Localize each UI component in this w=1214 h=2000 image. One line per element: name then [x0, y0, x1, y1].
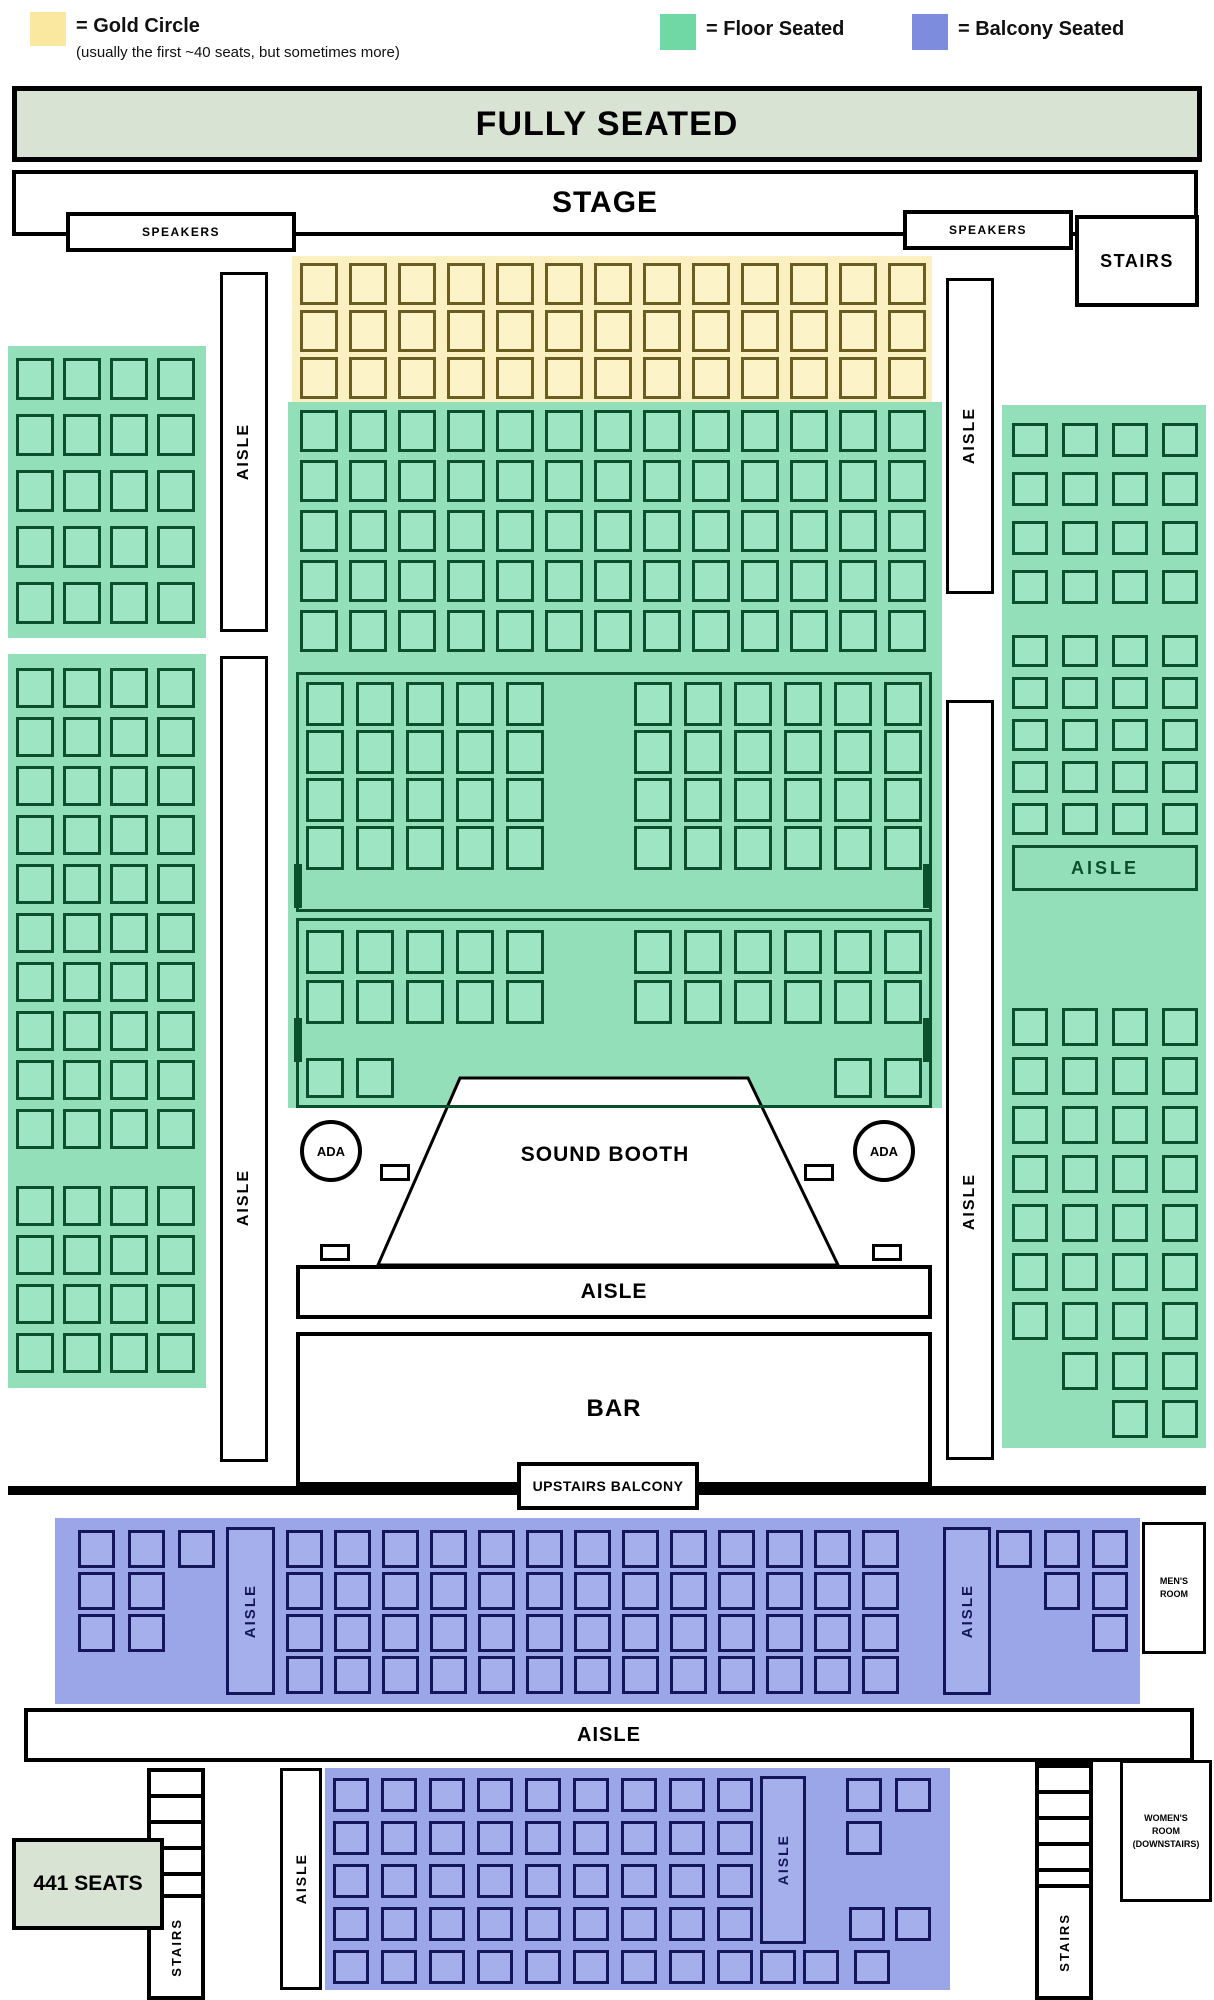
seat-floor-right-mid: [1012, 635, 1048, 667]
seat-balcony-lower-left: [669, 1864, 705, 1898]
seat-balcony-lower-right: [760, 1950, 796, 1984]
seat-balcony-upper-right: [1044, 1530, 1080, 1568]
ada-circle-left: ADA: [300, 1120, 362, 1182]
legend-gold-label: = Gold Circle: [76, 15, 200, 38]
seat-floor-right-upper: [1062, 472, 1098, 506]
seat-balcony-upper-mid: [478, 1572, 515, 1610]
seat-floor-right-rear-c: [1112, 1400, 1148, 1438]
seat-floor-left-upper: [16, 414, 54, 456]
seat-center-box2-edge-left: [306, 1058, 344, 1098]
seat-balcony-lower-left: [381, 1907, 417, 1941]
seat-center-box1-right: [684, 682, 722, 726]
stairs-label: STAIRS: [1057, 1913, 1072, 1972]
seat-floor-right-rear: [1112, 1057, 1148, 1095]
seat-floor-right-mid: [1112, 719, 1148, 751]
seat-gold-circle: [741, 357, 779, 399]
seat-center-box1-right: [784, 826, 822, 870]
seat-balcony-lower-left: [669, 1778, 705, 1812]
seat-floor-left-upper: [16, 470, 54, 512]
seat-floor-left-main: [16, 1011, 54, 1051]
seat-floor-right-rear: [1062, 1057, 1098, 1095]
seat-balcony-upper-mid: [574, 1614, 611, 1652]
aisle-label: AISLE: [1071, 858, 1139, 879]
womens-room-label-1: WOMEN'S: [1133, 1812, 1200, 1825]
seat-floor-front: [349, 510, 387, 552]
seat-floor-left-rear: [63, 1235, 101, 1275]
seat-floor-right-mid: [1112, 803, 1148, 835]
seat-floor-right-mid: [1062, 677, 1098, 709]
seat-floor-left-main: [157, 1109, 195, 1149]
seat-center-box1-left: [456, 826, 494, 870]
seat-floor-front: [643, 510, 681, 552]
seat-floor-left-upper: [110, 358, 148, 400]
seat-center-box1-left: [356, 682, 394, 726]
seat-floor-right-upper: [1012, 423, 1048, 457]
seat-floor-front: [790, 510, 828, 552]
seat-center-box2-right: [634, 930, 672, 974]
seat-center-box1-left: [506, 682, 544, 726]
sound-booth-label: SOUND BOOTH: [460, 1135, 750, 1175]
seat-floor-right-upper: [1012, 472, 1048, 506]
seat-floor-left-upper: [157, 582, 195, 624]
seat-center-box1-right: [784, 682, 822, 726]
seat-balcony-lower-left: [621, 1864, 657, 1898]
seat-center-box1-left: [306, 682, 344, 726]
seat-floor-front: [741, 460, 779, 502]
seat-balcony-lower-left: [429, 1907, 465, 1941]
seat-gold-circle: [594, 357, 632, 399]
seat-floor-front: [741, 510, 779, 552]
seat-balcony-upper-mid: [334, 1572, 371, 1610]
aisle-right-main: AISLE: [946, 700, 994, 1460]
seat-floor-front: [447, 560, 485, 602]
seat-floor-right-mid: [1162, 761, 1198, 793]
seat-balcony-lower-left: [717, 1821, 753, 1855]
seat-floor-right-mid: [1162, 677, 1198, 709]
seat-balcony-upper-mid: [670, 1530, 707, 1568]
seat-floor-right-upper: [1112, 521, 1148, 555]
seat-balcony-lower-left: [573, 1950, 609, 1984]
seat-floor-right-upper: [1012, 570, 1048, 604]
seat-balcony-upper-right: [996, 1530, 1032, 1568]
seat-balcony-lower-left: [669, 1907, 705, 1941]
seat-center-box1-right: [734, 778, 772, 822]
seat-balcony-upper-mid: [862, 1656, 899, 1694]
seat-balcony-upper-right: [1092, 1614, 1128, 1652]
seat-floor-left-main: [16, 913, 54, 953]
seat-balcony-upper-mid: [286, 1530, 323, 1568]
legend: = Gold Circle (usually the first ~40 sea…: [0, 0, 1214, 80]
speaker-right-box: SPEAKERS: [903, 210, 1073, 250]
seat-center-box2-right: [834, 930, 872, 974]
seat-floor-right-upper: [1112, 570, 1148, 604]
seat-balcony-upper-mid: [334, 1656, 371, 1694]
seat-center-box2-left: [506, 930, 544, 974]
seat-gold-circle: [447, 263, 485, 305]
seat-floor-right-rear-b: [1112, 1352, 1148, 1390]
seat-center-box1-left: [506, 778, 544, 822]
seat-gold-circle: [643, 357, 681, 399]
seat-floor-left-rear: [157, 1186, 195, 1226]
seat-center-box2-right: [684, 980, 722, 1024]
seat-floor-front: [839, 410, 877, 452]
mens-room-label-2: ROOM: [1160, 1588, 1188, 1601]
aisle-label: AISLE: [293, 1853, 309, 1904]
seat-gold-circle: [349, 310, 387, 352]
seat-floor-front: [888, 410, 926, 452]
seat-balcony-upper-mid: [334, 1614, 371, 1652]
seat-floor-right-upper: [1162, 521, 1198, 555]
seat-balcony-upper-mid: [430, 1614, 467, 1652]
seat-floor-right-mid: [1112, 635, 1148, 667]
seat-balcony-upper-mid: [670, 1614, 707, 1652]
seat-gold-circle: [545, 310, 583, 352]
seat-center-box1-right: [734, 826, 772, 870]
seat-gold-circle: [839, 310, 877, 352]
seat-gold-circle: [643, 263, 681, 305]
seat-floor-front: [888, 610, 926, 652]
seat-center-box2-right: [684, 930, 722, 974]
seat-floor-right-rear: [1162, 1253, 1198, 1291]
seat-floor-front: [790, 610, 828, 652]
seat-floor-left-main: [110, 1011, 148, 1051]
seat-floor-left-rear: [63, 1186, 101, 1226]
seat-balcony-upper-mid: [382, 1614, 419, 1652]
seat-floor-right-rear: [1162, 1155, 1198, 1193]
seat-floor-front: [741, 610, 779, 652]
seat-floor-left-main: [63, 1011, 101, 1051]
seat-floor-front: [790, 460, 828, 502]
seat-balcony-lower-left: [381, 1864, 417, 1898]
seat-balcony-upper-left: [128, 1530, 165, 1568]
seat-floor-front: [545, 510, 583, 552]
seat-balcony-lower-right: [849, 1907, 885, 1941]
seat-gold-circle: [496, 263, 534, 305]
seat-balcony-lower-left: [525, 1950, 561, 1984]
seat-center-box2-left: [506, 980, 544, 1024]
seat-floor-left-rear: [16, 1333, 54, 1373]
seat-center-box1-right: [884, 778, 922, 822]
seat-balcony-lower-left: [381, 1778, 417, 1812]
seat-floor-left-main: [63, 668, 101, 708]
seat-gold-circle: [398, 310, 436, 352]
seat-floor-left-main: [16, 962, 54, 1002]
seat-floor-front: [496, 560, 534, 602]
stage-stairs-label: STAIRS: [1100, 251, 1174, 272]
seat-floor-right-rear: [1012, 1155, 1048, 1193]
seat-floor-right-upper: [1012, 521, 1048, 555]
seat-floor-left-main: [110, 766, 148, 806]
seat-balcony-upper-mid: [286, 1614, 323, 1652]
seat-balcony-lower-left: [573, 1907, 609, 1941]
seat-floor-front: [692, 460, 730, 502]
seat-gold-circle: [349, 263, 387, 305]
aisle-label: AISLE: [581, 1280, 648, 1304]
seat-gold-circle: [349, 357, 387, 399]
seat-floor-right-rear: [1062, 1253, 1098, 1291]
seat-floor-left-main: [157, 962, 195, 1002]
seat-floor-right-rear: [1112, 1253, 1148, 1291]
seat-center-box1-left: [456, 682, 494, 726]
seat-gold-circle: [594, 310, 632, 352]
seat-floor-right-rear: [1112, 1204, 1148, 1242]
seat-floor-right-mid: [1162, 719, 1198, 751]
aisle-label: AISLE: [961, 1173, 979, 1230]
seat-balcony-lower-right: [854, 1950, 890, 1984]
seat-balcony-lower-left: [477, 1821, 513, 1855]
seat-center-box1-right: [734, 682, 772, 726]
seat-floor-left-rear: [63, 1333, 101, 1373]
seat-gold-circle: [790, 357, 828, 399]
seat-gold-circle: [741, 310, 779, 352]
legend-balcony-label: = Balcony Seated: [958, 18, 1124, 41]
seat-balcony-upper-mid: [382, 1530, 419, 1568]
seat-floor-front: [447, 510, 485, 552]
seat-balcony-upper-left: [178, 1530, 215, 1568]
lower-left-aisle: AISLE: [280, 1768, 322, 1990]
seat-floor-front: [496, 410, 534, 452]
seat-balcony-upper-mid: [814, 1656, 851, 1694]
seat-floor-right-upper: [1162, 570, 1198, 604]
seat-balcony-upper-mid: [478, 1656, 515, 1694]
seat-gold-circle: [839, 263, 877, 305]
seat-floor-front: [643, 610, 681, 652]
seat-floor-right-upper: [1112, 423, 1148, 457]
seat-floor-left-main: [63, 717, 101, 757]
seat-floor-right-rear: [1062, 1302, 1098, 1340]
upstairs-balcony-label: UPSTAIRS BALCONY: [517, 1462, 699, 1510]
ada-marker: [872, 1244, 902, 1261]
seat-gold-circle: [545, 357, 583, 399]
seat-floor-front: [692, 610, 730, 652]
seat-floor-left-main: [110, 815, 148, 855]
seat-floor-right-rear: [1062, 1008, 1098, 1046]
seat-center-box1-right: [884, 682, 922, 726]
seat-balcony-upper-mid: [766, 1530, 803, 1568]
seat-gold-circle: [643, 310, 681, 352]
seat-floor-left-main: [157, 913, 195, 953]
seat-floor-left-main: [16, 766, 54, 806]
seat-balcony-upper-mid: [286, 1656, 323, 1694]
seat-floor-front: [643, 560, 681, 602]
seat-center-box2-right: [634, 980, 672, 1024]
seat-center-box1-right: [634, 826, 672, 870]
seat-floor-left-upper: [157, 414, 195, 456]
seat-floor-left-upper: [63, 582, 101, 624]
seat-floor-front: [594, 460, 632, 502]
seat-floor-front: [398, 560, 436, 602]
seat-gold-circle: [496, 357, 534, 399]
seat-center-box2-right: [884, 980, 922, 1024]
seat-floor-left-main: [157, 1060, 195, 1100]
seat-floor-left-rear: [63, 1284, 101, 1324]
seat-balcony-lower-left: [333, 1907, 369, 1941]
seat-floor-left-rear: [157, 1235, 195, 1275]
seat-balcony-lower-left: [669, 1821, 705, 1855]
seat-floor-front: [545, 560, 583, 602]
seat-gold-circle: [888, 310, 926, 352]
seat-balcony-lower-left: [573, 1864, 609, 1898]
seat-balcony-lower-right: [895, 1778, 931, 1812]
seat-balcony-lower-right: [846, 1821, 882, 1855]
seat-balcony-upper-right: [1092, 1572, 1128, 1610]
seat-balcony-upper-mid: [670, 1656, 707, 1694]
seat-gold-circle: [594, 263, 632, 305]
seat-balcony-upper-left: [78, 1614, 115, 1652]
seat-balcony-upper-mid: [430, 1656, 467, 1694]
ada-label: ADA: [870, 1144, 898, 1159]
seat-floor-right-rear-b: [1062, 1352, 1098, 1390]
seat-center-box2-left: [306, 930, 344, 974]
seat-floor-left-main: [157, 766, 195, 806]
seat-balcony-lower-left: [621, 1950, 657, 1984]
seat-center-box1-right: [734, 730, 772, 774]
seat-floor-right-rear: [1012, 1008, 1048, 1046]
seat-floor-right-rear: [1112, 1008, 1148, 1046]
seat-center-box1-left: [356, 778, 394, 822]
seat-balcony-lower-left: [381, 1950, 417, 1984]
seat-floor-left-upper: [16, 582, 54, 624]
seat-floor-front: [447, 460, 485, 502]
seat-balcony-lower-left: [477, 1950, 513, 1984]
seat-floor-front: [349, 460, 387, 502]
aisle-label: AISLE: [242, 1584, 259, 1638]
seat-balcony-lower-left: [477, 1778, 513, 1812]
seat-floor-right-mid: [1012, 677, 1048, 709]
seat-floor-front: [398, 410, 436, 452]
seat-floor-left-upper: [63, 526, 101, 568]
seat-balcony-lower-left: [717, 1907, 753, 1941]
seat-floor-left-main: [63, 962, 101, 1002]
seat-balcony-upper-mid: [766, 1614, 803, 1652]
seat-floor-front: [839, 560, 877, 602]
seat-floor-right-rear: [1062, 1106, 1098, 1144]
seat-floor-right-rear: [1012, 1204, 1048, 1242]
seat-balcony-lower-right: [846, 1778, 882, 1812]
door-marker: [923, 1018, 931, 1062]
aisle-label: AISLE: [959, 1584, 976, 1638]
seat-gold-circle: [447, 357, 485, 399]
seat-balcony-upper-mid: [718, 1656, 755, 1694]
seating-chart: = Gold Circle (usually the first ~40 sea…: [0, 0, 1214, 2000]
seat-floor-left-rear: [16, 1235, 54, 1275]
seat-floor-front: [496, 510, 534, 552]
seat-floor-right-upper: [1062, 570, 1098, 604]
seat-balcony-upper-mid: [526, 1572, 563, 1610]
seat-center-box1-left: [306, 826, 344, 870]
seat-balcony-lower-left: [333, 1864, 369, 1898]
aisle-center-cross: AISLE: [296, 1265, 932, 1319]
seat-balcony-lower-left: [573, 1821, 609, 1855]
seat-center-box2-right: [734, 930, 772, 974]
seat-balcony-upper-mid: [526, 1614, 563, 1652]
seat-floor-front: [496, 460, 534, 502]
seat-center-box2-right: [784, 980, 822, 1024]
seat-center-box1-right: [684, 826, 722, 870]
seat-balcony-lower-left: [477, 1864, 513, 1898]
seat-gold-circle: [692, 263, 730, 305]
seat-floor-right-rear-c: [1162, 1400, 1198, 1438]
seat-floor-front: [300, 460, 338, 502]
seat-floor-front: [300, 510, 338, 552]
seat-floor-left-rear: [110, 1333, 148, 1373]
seat-center-box1-right: [634, 682, 672, 726]
seat-gold-circle: [692, 357, 730, 399]
seat-floor-left-rear: [16, 1186, 54, 1226]
seat-balcony-upper-mid: [718, 1614, 755, 1652]
seat-balcony-upper-left: [128, 1614, 165, 1652]
floor-right-area: [1002, 405, 1206, 1448]
seat-floor-right-rear: [1162, 1302, 1198, 1340]
seat-floor-right-rear: [1062, 1155, 1098, 1193]
seat-floor-front: [594, 510, 632, 552]
seat-floor-right-rear: [1012, 1302, 1048, 1340]
seat-balcony-upper-mid: [334, 1530, 371, 1568]
seat-center-box2-left: [406, 980, 444, 1024]
seat-floor-front: [741, 560, 779, 602]
seat-floor-front: [300, 410, 338, 452]
seat-floor-front: [790, 560, 828, 602]
door-marker: [294, 1018, 302, 1062]
seat-floor-left-rear: [110, 1284, 148, 1324]
seat-center-box1-right: [784, 778, 822, 822]
seat-floor-right-mid: [1062, 719, 1098, 751]
seat-gold-circle: [888, 357, 926, 399]
seat-floor-front: [545, 610, 583, 652]
seat-floor-left-upper: [16, 526, 54, 568]
seat-gold-circle: [790, 263, 828, 305]
seat-floor-front: [839, 510, 877, 552]
aisle-label: AISLE: [961, 407, 979, 464]
seat-floor-right-mid: [1012, 761, 1048, 793]
seat-center-box2-right: [834, 980, 872, 1024]
seat-balcony-lower-left: [621, 1907, 657, 1941]
seat-floor-left-main: [110, 717, 148, 757]
seat-center-box2-left: [356, 930, 394, 974]
seat-center-box1-left: [356, 826, 394, 870]
seat-floor-front: [594, 610, 632, 652]
seat-floor-left-upper: [16, 358, 54, 400]
seat-gold-circle: [790, 310, 828, 352]
ada-label: ADA: [317, 1144, 345, 1159]
seat-floor-right-upper: [1162, 472, 1198, 506]
seat-floor-right-rear: [1062, 1204, 1098, 1242]
seat-floor-front: [692, 560, 730, 602]
seat-balcony-lower-left: [333, 1778, 369, 1812]
seat-gold-circle: [888, 263, 926, 305]
seat-floor-front: [349, 610, 387, 652]
seat-balcony-upper-mid: [526, 1656, 563, 1694]
seat-floor-front: [692, 510, 730, 552]
seat-center-box2-left: [306, 980, 344, 1024]
seat-floor-right-rear: [1112, 1106, 1148, 1144]
seat-center-box2-left: [456, 930, 494, 974]
seat-floor-left-main: [157, 717, 195, 757]
seat-balcony-lower-left: [717, 1864, 753, 1898]
seat-balcony-upper-mid: [622, 1530, 659, 1568]
seat-gold-circle: [447, 310, 485, 352]
seat-balcony-upper-mid: [814, 1572, 851, 1610]
seat-balcony-upper-left: [78, 1530, 115, 1568]
seat-floor-left-main: [110, 1109, 148, 1149]
balcony-lower-aisle: AISLE: [760, 1776, 806, 1944]
seat-floor-right-mid: [1112, 761, 1148, 793]
stairs-box-right: STAIRS: [1035, 1884, 1093, 2000]
seat-floor-right-mid: [1162, 803, 1198, 835]
seat-balcony-upper-mid: [622, 1572, 659, 1610]
seat-floor-left-main: [16, 668, 54, 708]
seat-balcony-upper-mid: [430, 1530, 467, 1568]
